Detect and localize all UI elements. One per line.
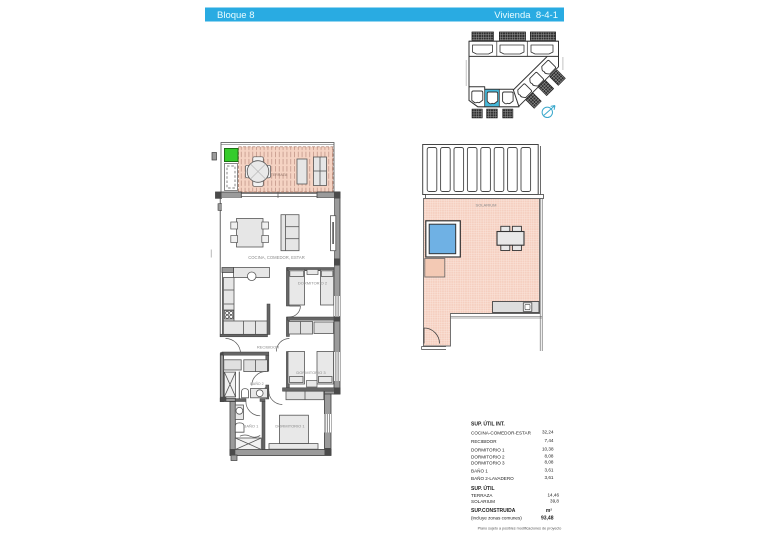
svg-text:COCINA-COMEDOR-ESTAR: COCINA-COMEDOR-ESTAR [471,431,532,436]
svg-text:RECIBIDOR: RECIBIDOR [471,439,497,444]
svg-text:BAÑO 1: BAÑO 1 [471,468,488,474]
svg-text:3,61: 3,61 [545,475,554,480]
svg-text:DORMITORIO 2: DORMITORIO 2 [298,281,328,286]
svg-text:SUP.CONSTRUIDA: SUP.CONSTRUIDA [471,508,516,514]
svg-text:SOLARIUM: SOLARIUM [476,203,497,208]
svg-text:10,38: 10,38 [542,447,554,452]
svg-text:Plano sujeto a posibles modifi: Plano sujeto a posibles modificaciones d… [478,527,562,531]
svg-text:Bloque 8: Bloque 8 [217,10,255,21]
svg-text:DORMITORIO 2: DORMITORIO 2 [471,455,505,460]
svg-text:Vivienda 8-4-1: Vivienda 8-4-1 [494,10,558,21]
svg-text:39,8: 39,8 [550,499,559,504]
svg-text:SUP. ÚTIL: SUP. ÚTIL [471,485,495,492]
svg-text:DORMITORIO 3: DORMITORIO 3 [296,370,326,375]
svg-text:DORMITORIO 1: DORMITORIO 1 [471,448,505,453]
svg-text:8,08: 8,08 [545,460,554,465]
svg-text:RECIBIDOR: RECIBIDOR [257,345,279,350]
svg-text:SUP. ÚTIL INT.: SUP. ÚTIL INT. [471,421,505,428]
svg-text:DORMITORIO 1: DORMITORIO 1 [275,424,305,429]
svg-text:TERRAZA: TERRAZA [471,493,493,498]
svg-text:14,46: 14,46 [548,493,560,498]
svg-text:TERRAZA: TERRAZA [271,173,288,177]
svg-text:SOLARIUM: SOLARIUM [471,499,495,504]
svg-text:(incluye zonas comunes): (incluye zonas comunes) [471,516,522,521]
svg-text:BAÑO 1: BAÑO 1 [244,424,259,429]
svg-text:7,44: 7,44 [545,438,554,443]
svg-text:3,61: 3,61 [545,468,554,473]
svg-text:93,48: 93,48 [541,516,554,522]
svg-text:BAÑO 2-LAVADERO: BAÑO 2-LAVADERO [471,475,514,481]
svg-text:BAÑO 2: BAÑO 2 [250,381,263,386]
svg-text:32,24: 32,24 [542,430,554,435]
svg-text:COCINA, COMEDOR, ESTAR: COCINA, COMEDOR, ESTAR [248,255,304,260]
svg-text:m²: m² [546,508,552,514]
svg-text:8,08: 8,08 [545,454,554,459]
svg-text:DORMITORIO 3: DORMITORIO 3 [471,461,505,466]
